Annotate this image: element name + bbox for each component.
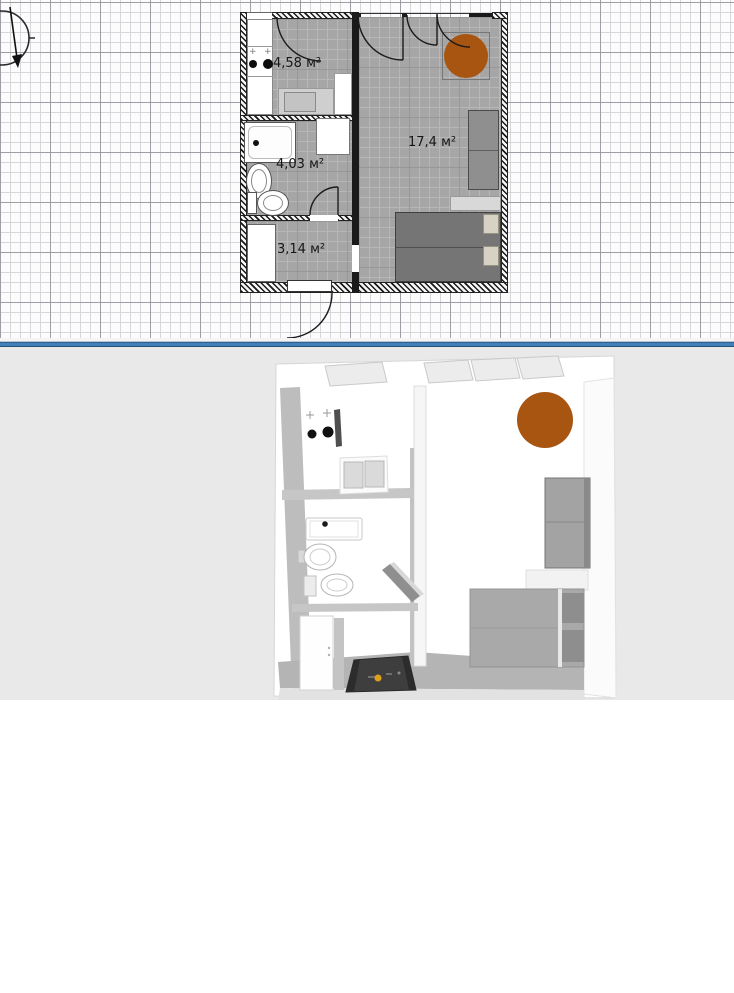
toilet-icon bbox=[321, 574, 353, 596]
room-area-label: 4,58 м² bbox=[273, 57, 321, 71]
bed-pillow-3d bbox=[562, 630, 584, 662]
room-area-label: 4,03 м² bbox=[276, 158, 324, 172]
watermark-suffix: ua bbox=[463, 915, 533, 975]
door-swing-arc-icon bbox=[407, 15, 437, 45]
stove-burners-icon bbox=[308, 430, 317, 439]
room-area-label: 17,4 м² bbox=[408, 136, 456, 150]
mat-dot bbox=[398, 672, 401, 675]
toilet-tank bbox=[304, 576, 316, 596]
bed-pillow-3d bbox=[562, 593, 584, 623]
room-area-label: 3,14 м² bbox=[277, 243, 325, 257]
bed-gap bbox=[558, 589, 562, 667]
door-swing-arc-icon bbox=[287, 293, 332, 338]
floor-plan-3d bbox=[268, 352, 618, 700]
wardrobe-icon bbox=[545, 478, 590, 568]
bath-hall-wall-3d bbox=[292, 603, 418, 612]
hall-door-leaf bbox=[300, 616, 333, 690]
washbasin-icon bbox=[304, 544, 336, 570]
door-handle-dot bbox=[328, 654, 330, 656]
bathtub-drain bbox=[322, 521, 328, 527]
mat-speckle bbox=[386, 673, 392, 675]
door-swing-arc-icon bbox=[358, 15, 403, 60]
door-swing-arc-icon bbox=[277, 17, 321, 61]
wardrobe-side bbox=[584, 478, 589, 568]
door-handle-dot bbox=[328, 647, 330, 649]
counter-door bbox=[344, 462, 363, 488]
counter-door bbox=[365, 461, 384, 487]
watermark-letter-m: М bbox=[291, 917, 338, 973]
shelf-icon bbox=[526, 570, 588, 590]
round-table-icon bbox=[517, 392, 573, 448]
central-wall-3d bbox=[414, 386, 426, 666]
floor-plan-2d: + + bbox=[240, 12, 508, 295]
door-handle-icon bbox=[375, 675, 382, 682]
north-compass-icon bbox=[0, 6, 46, 70]
hall-wall-strip bbox=[334, 618, 344, 690]
stove-burners-icon bbox=[323, 427, 334, 438]
central-wall-shadow bbox=[410, 448, 414, 666]
door-swing-arc-icon bbox=[437, 14, 470, 47]
grid-paper-background: + + bbox=[0, 0, 734, 338]
door-swing-arc-icon bbox=[310, 187, 338, 215]
house-in-brackets-icon bbox=[190, 893, 275, 993]
